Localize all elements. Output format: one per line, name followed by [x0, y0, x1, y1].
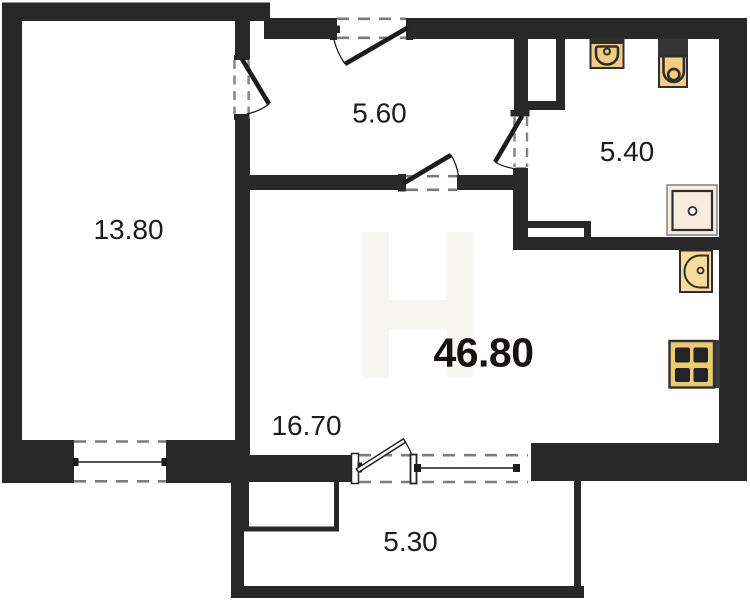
- svg-text:5.30: 5.30: [383, 526, 438, 557]
- svg-text:5.60: 5.60: [352, 98, 407, 129]
- svg-text:46.80: 46.80: [433, 330, 533, 376]
- svg-text:5.40: 5.40: [600, 136, 655, 167]
- svg-text:13.80: 13.80: [93, 214, 163, 245]
- svg-text:16.70: 16.70: [271, 410, 341, 441]
